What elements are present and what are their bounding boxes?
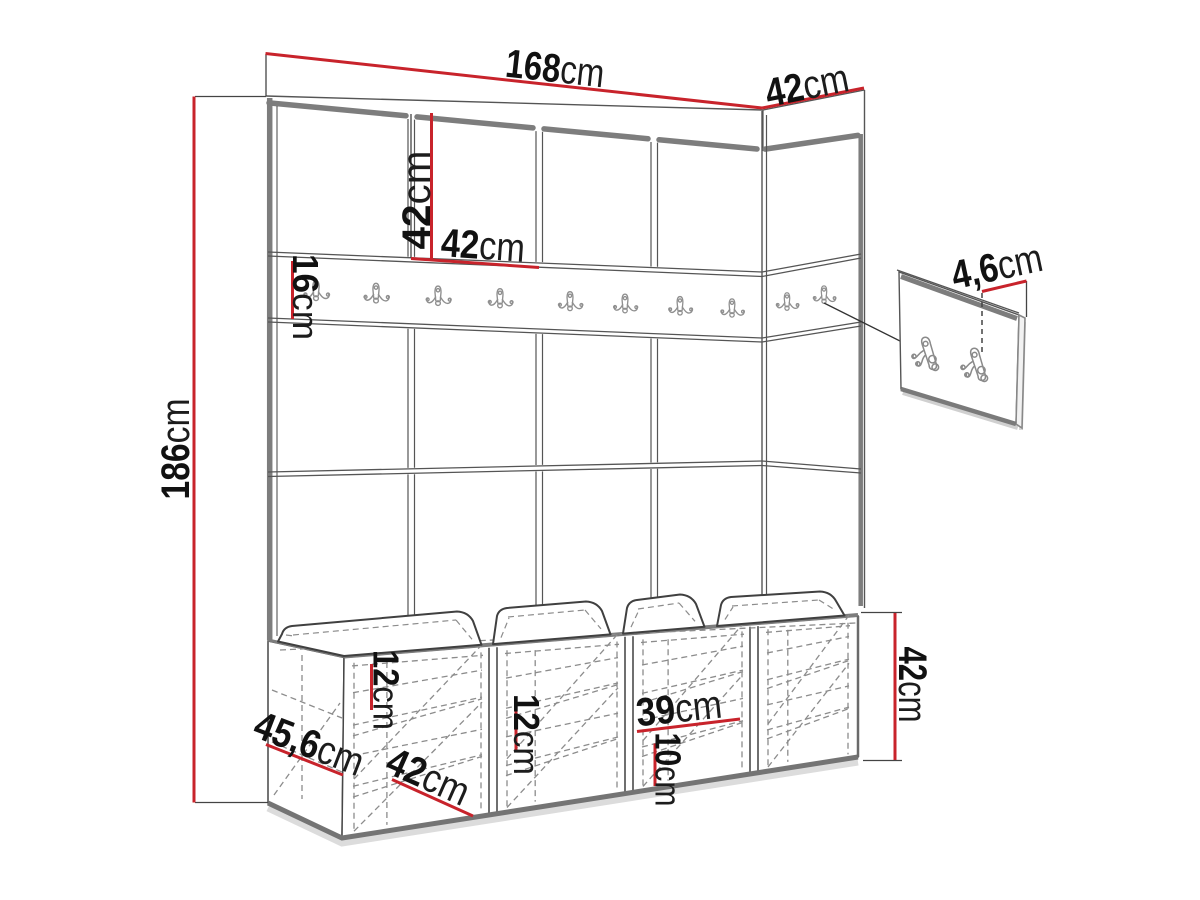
- svg-text:16cm: 16cm: [286, 254, 327, 340]
- svg-text:39cm: 39cm: [634, 683, 724, 736]
- svg-text:10cm: 10cm: [648, 733, 689, 807]
- svg-text:42cm: 42cm: [440, 221, 527, 271]
- svg-text:12cm: 12cm: [366, 650, 407, 730]
- svg-text:12cm: 12cm: [507, 694, 548, 775]
- svg-text:186cm: 186cm: [154, 399, 198, 500]
- svg-text:42cm: 42cm: [890, 647, 934, 723]
- svg-text:42cm: 42cm: [395, 151, 439, 250]
